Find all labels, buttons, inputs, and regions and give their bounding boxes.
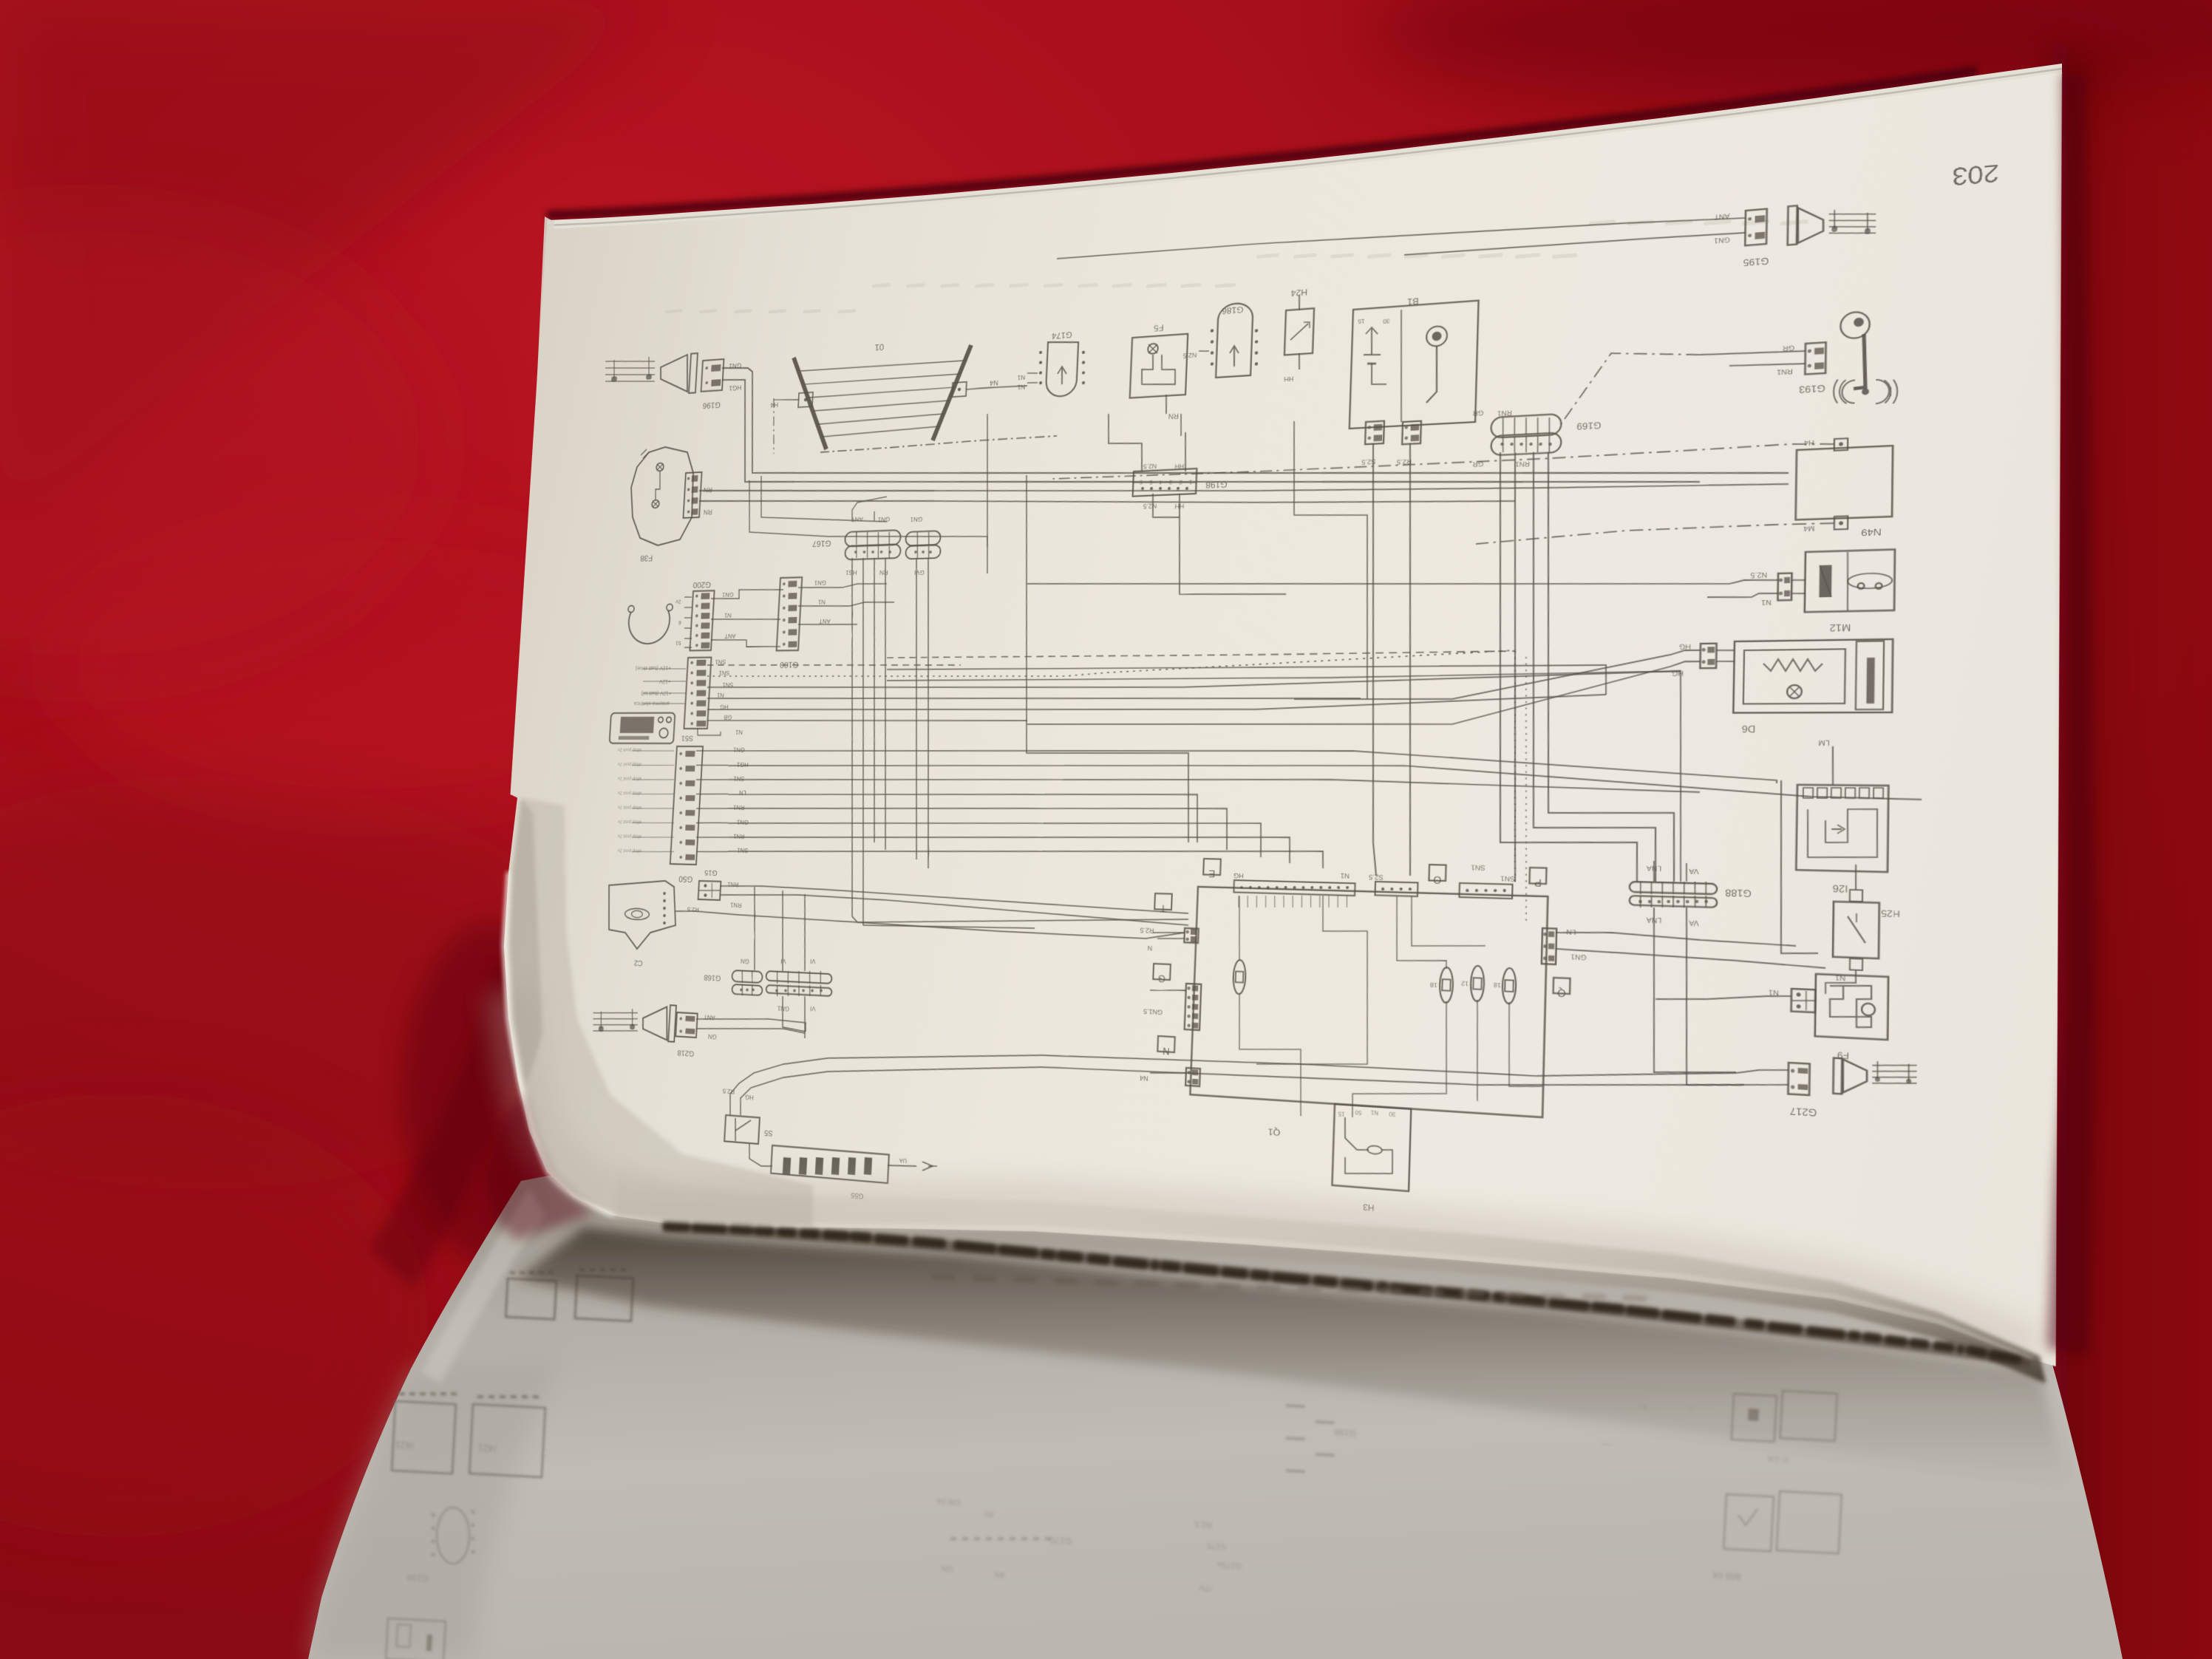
svg-text:RN1: RN1 bbox=[733, 832, 745, 839]
svg-text:G: G bbox=[1157, 972, 1165, 984]
svg-text:R2.5: R2.5 bbox=[1140, 926, 1154, 933]
svg-text:GN1: GN1 bbox=[814, 579, 827, 585]
svg-text:N1: N1 bbox=[717, 692, 724, 698]
svg-text:B1: B1 bbox=[1407, 296, 1419, 307]
svg-text:18: 18 bbox=[1429, 981, 1437, 988]
svg-text:+12V (batt tel): +12V (batt tel) bbox=[641, 689, 672, 696]
svg-text:ANT: ANT bbox=[724, 633, 735, 639]
svg-text:VI: VI bbox=[780, 957, 786, 964]
svg-text:HG: HG bbox=[745, 1093, 754, 1100]
svg-text:51: 51 bbox=[675, 640, 681, 646]
svg-text:RN1: RN1 bbox=[730, 901, 742, 907]
svg-text:N1: N1 bbox=[1761, 598, 1772, 605]
svg-text:altop post 2v: altop post 2v bbox=[617, 790, 642, 796]
svg-text:GN1: GN1 bbox=[722, 590, 734, 597]
svg-text:GN1: GN1 bbox=[1570, 953, 1587, 961]
svg-text:GN1: GN1 bbox=[777, 1004, 790, 1012]
svg-text:VI: VI bbox=[810, 957, 816, 964]
svg-text:R2.5: R2.5 bbox=[687, 905, 700, 912]
svg-text:GN: GN bbox=[708, 1032, 717, 1039]
svg-text:SN1: SN1 bbox=[718, 670, 729, 676]
svg-text:S51: S51 bbox=[681, 735, 693, 743]
svg-text:G169: G169 bbox=[1576, 420, 1601, 431]
svg-text:R2.5: R2.5 bbox=[722, 1087, 735, 1094]
svg-text:B55 04: B55 04 bbox=[1712, 1570, 1741, 1582]
svg-text:N4: N4 bbox=[1140, 1074, 1148, 1081]
svg-text:antenna elettrica: antenna elettrica bbox=[633, 700, 670, 706]
svg-text:ANT: ANT bbox=[1713, 211, 1729, 219]
svg-text:N2.5: N2.5 bbox=[1750, 570, 1767, 579]
svg-text:altop post 2v: altop post 2v bbox=[617, 804, 642, 810]
svg-text:R2.5: R2.5 bbox=[1194, 1519, 1212, 1529]
svg-text:15: 15 bbox=[1338, 1110, 1344, 1117]
svg-text:altop post 2v: altop post 2v bbox=[617, 819, 642, 825]
svg-text:G167: G167 bbox=[812, 539, 831, 548]
svg-text:6: 6 bbox=[678, 619, 681, 625]
svg-text:N1: N1 bbox=[1017, 383, 1025, 389]
svg-text:M12: M12 bbox=[1829, 622, 1851, 633]
svg-text:G188: G188 bbox=[1725, 888, 1752, 899]
svg-text:VI: VI bbox=[810, 1004, 816, 1011]
svg-text:G50: G50 bbox=[678, 874, 693, 884]
svg-text:G195: G195 bbox=[1743, 256, 1769, 268]
svg-text:+12V (batt drive): +12V (batt drive) bbox=[636, 664, 672, 671]
svg-text:N1: N1 bbox=[1017, 373, 1025, 380]
svg-text:4N: 4N bbox=[994, 1570, 1005, 1579]
svg-text:RN1: RN1 bbox=[1497, 409, 1512, 416]
svg-text:RN: RN bbox=[879, 568, 888, 575]
svg-text:GN 04: GN 04 bbox=[937, 1496, 962, 1507]
svg-text:G170: G170 bbox=[1049, 1535, 1072, 1547]
svg-text:12: 12 bbox=[1460, 979, 1469, 987]
svg-text:SN1: SN1 bbox=[722, 681, 733, 688]
svg-text:GN: GN bbox=[741, 957, 749, 964]
svg-text:/421: /421 bbox=[477, 1442, 497, 1454]
svg-text:S5: S5 bbox=[763, 1128, 773, 1138]
svg-text:altop post 2v: altop post 2v bbox=[617, 761, 642, 766]
svg-text:G196: G196 bbox=[406, 1572, 429, 1584]
svg-text:N: N bbox=[1163, 1045, 1170, 1056]
svg-text:30: 30 bbox=[1389, 1110, 1395, 1117]
svg-text:C2: C2 bbox=[633, 958, 643, 968]
svg-text:203: 203 bbox=[1952, 159, 1999, 191]
svg-text:ITV: ITV bbox=[1199, 1583, 1213, 1592]
svg-text:GVI: GVI bbox=[914, 568, 925, 575]
svg-text:2v: 2v bbox=[675, 599, 681, 604]
svg-text:UA: UA bbox=[899, 1156, 908, 1164]
svg-text:RN1: RN1 bbox=[1515, 460, 1530, 467]
svg-text:VA: VA bbox=[1689, 919, 1699, 927]
svg-text:H3: H3 bbox=[1363, 1202, 1375, 1213]
svg-text:GB: GB bbox=[724, 714, 732, 720]
svg-text:GN1: GN1 bbox=[729, 361, 742, 370]
svg-text:30: 30 bbox=[1382, 317, 1389, 324]
svg-text:N1: N1 bbox=[735, 729, 743, 735]
svg-text:N4: N4 bbox=[989, 378, 998, 387]
svg-text:G168: G168 bbox=[704, 973, 721, 983]
svg-text:G55: G55 bbox=[851, 1191, 864, 1201]
svg-text:N1: N1 bbox=[724, 612, 732, 619]
svg-text:SN1: SN1 bbox=[737, 846, 748, 853]
svg-text:G15: G15 bbox=[704, 868, 717, 878]
svg-text:N1: N1 bbox=[818, 598, 826, 604]
svg-text:18: 18 bbox=[1493, 981, 1501, 988]
svg-text:G198: G198 bbox=[1205, 480, 1228, 490]
svg-text:N49: N49 bbox=[1861, 527, 1882, 538]
svg-text:H24: H24 bbox=[1290, 287, 1307, 299]
svg-text:GN1: GN1 bbox=[737, 818, 749, 825]
svg-text:SN1: SN1 bbox=[1500, 874, 1515, 882]
svg-text:=::: =:: bbox=[1638, 1401, 1649, 1412]
svg-text:S2.5: S2.5 bbox=[1369, 873, 1384, 880]
svg-text:LN: LN bbox=[1566, 927, 1576, 935]
svg-text:G175a: G175a bbox=[1216, 1560, 1242, 1570]
svg-text:HG: HG bbox=[1233, 871, 1244, 879]
svg-text:ANT: ANT bbox=[818, 617, 831, 624]
svg-text:G186: G186 bbox=[1222, 304, 1244, 316]
svg-text:50: 50 bbox=[1355, 1108, 1361, 1115]
svg-text:D6: D6 bbox=[1742, 723, 1756, 734]
svg-text:RN: RN bbox=[1168, 412, 1180, 420]
svg-text:HG: HG bbox=[720, 704, 729, 709]
svg-text:LM: LM bbox=[1818, 738, 1830, 746]
svg-text:HH: HH bbox=[1174, 462, 1184, 469]
svg-text:HG1: HG1 bbox=[737, 761, 749, 768]
svg-text:N2.5: N2.5 bbox=[1143, 502, 1157, 509]
svg-text:I26: I26 bbox=[1832, 883, 1848, 894]
svg-text:G175: G175 bbox=[1207, 1541, 1228, 1551]
svg-text:GR: GR bbox=[1783, 344, 1794, 352]
svg-text:H4: H4 bbox=[1804, 438, 1814, 446]
svg-text:H25: H25 bbox=[1881, 908, 1900, 920]
svg-text:GN: GN bbox=[941, 1564, 953, 1573]
svg-text:altop post 2v: altop post 2v bbox=[617, 747, 642, 752]
svg-text:HG1: HG1 bbox=[729, 384, 742, 392]
svg-text:HG: HG bbox=[1679, 642, 1691, 650]
svg-text:—: — bbox=[1602, 1440, 1611, 1451]
svg-text:Q: Q bbox=[1557, 987, 1566, 998]
svg-text:G198: G198 bbox=[1334, 1427, 1357, 1439]
svg-text:GN1.5: GN1.5 bbox=[1143, 1007, 1163, 1015]
svg-text:N2.5: N2.5 bbox=[1143, 462, 1157, 469]
svg-text:4V: 4V bbox=[983, 1509, 994, 1519]
svg-text:N2.5: N2.5 bbox=[1182, 351, 1197, 358]
svg-text:RN1: RN1 bbox=[1777, 367, 1793, 375]
svg-text:SN1: SN1 bbox=[715, 658, 726, 665]
svg-text:N1: N1 bbox=[1371, 1108, 1379, 1115]
svg-text:RN1: RN1 bbox=[727, 880, 739, 887]
svg-text:F5: F5 bbox=[1154, 323, 1164, 333]
svg-text:+12V: +12V bbox=[659, 678, 671, 684]
svg-text:ANT: ANT bbox=[703, 1013, 715, 1020]
svg-text:HS1: HS1 bbox=[845, 568, 857, 575]
svg-text:01: 01 bbox=[874, 341, 885, 352]
svg-text:RN1: RN1 bbox=[733, 803, 745, 810]
svg-text:C·1/A: C·1/A bbox=[1767, 1454, 1789, 1464]
svg-text:M4: M4 bbox=[1803, 524, 1815, 531]
svg-text:T: T bbox=[1160, 902, 1166, 913]
svg-text:GR: GR bbox=[1473, 409, 1484, 416]
svg-text:N1: N1 bbox=[1769, 988, 1779, 996]
svg-text:G218: G218 bbox=[677, 1049, 695, 1059]
svg-text:O: O bbox=[1433, 873, 1442, 885]
svg-text:P: P bbox=[1534, 876, 1542, 888]
svg-text:G196: G196 bbox=[702, 401, 721, 410]
svg-text:/421: /421 bbox=[395, 1440, 414, 1451]
svg-text:E: E bbox=[1208, 868, 1216, 879]
svg-text:RN: RN bbox=[704, 508, 713, 516]
svg-text:N1: N1 bbox=[1341, 871, 1350, 879]
svg-text:G200: G200 bbox=[692, 580, 711, 589]
svg-text:altop post 2v: altop post 2v bbox=[617, 848, 642, 854]
svg-text:G217: G217 bbox=[1790, 1106, 1817, 1118]
svg-text:RN: RN bbox=[704, 486, 713, 494]
svg-text:VA: VA bbox=[1689, 867, 1699, 874]
svg-text:HH: HH bbox=[1284, 375, 1294, 382]
svg-text:Q1: Q1 bbox=[1267, 1127, 1280, 1138]
svg-text:GN1: GN1 bbox=[910, 515, 922, 522]
svg-text:N: N bbox=[1148, 944, 1153, 951]
svg-text:altop post 2v: altop post 2v bbox=[617, 833, 642, 839]
svg-text:GN1: GN1 bbox=[1714, 235, 1730, 243]
svg-text:SN1: SN1 bbox=[733, 775, 744, 782]
svg-text:G174: G174 bbox=[1052, 330, 1072, 341]
svg-text:altop post 2v: altop post 2v bbox=[617, 775, 642, 780]
svg-text:G193: G193 bbox=[1799, 383, 1825, 395]
svg-text:F38: F38 bbox=[640, 553, 653, 562]
svg-text:HG: HG bbox=[1672, 669, 1684, 676]
svg-text:SN1: SN1 bbox=[1471, 863, 1486, 871]
svg-text:15: 15 bbox=[1357, 317, 1364, 324]
